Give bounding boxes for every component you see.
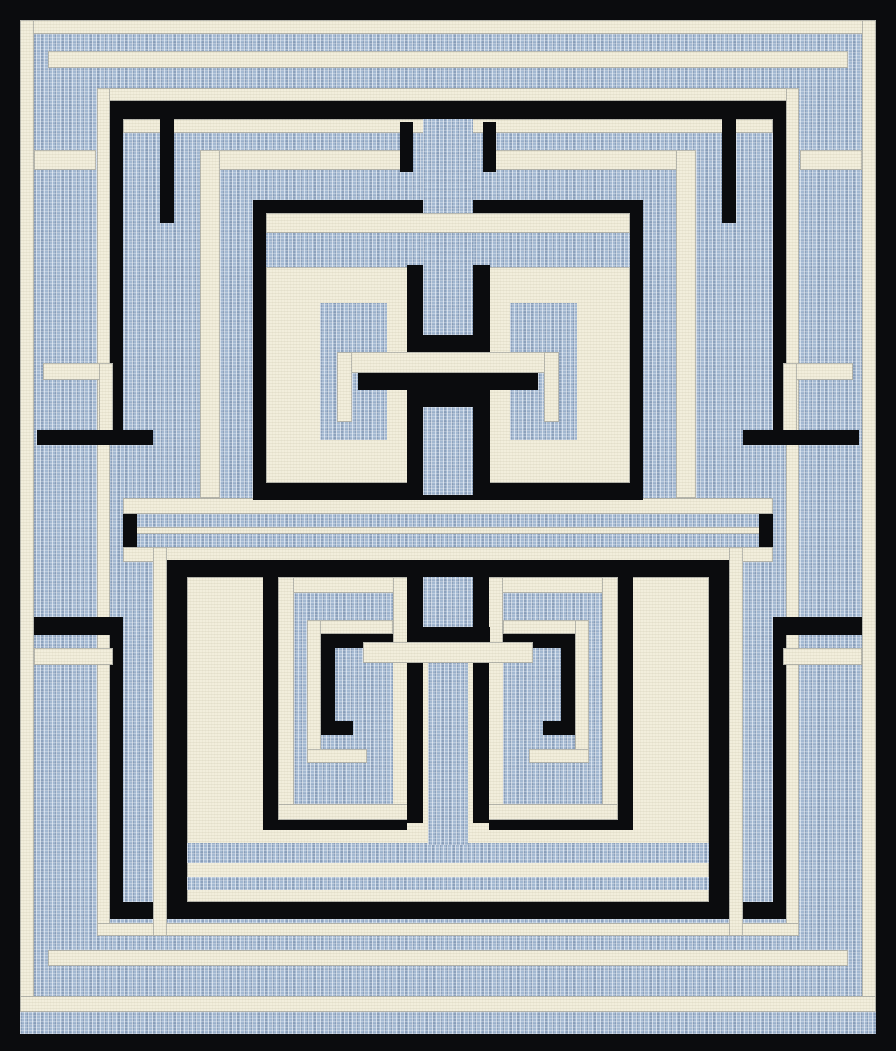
spiral-right-bottom — [487, 804, 618, 820]
notch-cream-left-upper — [34, 150, 96, 170]
bp-R4-right — [729, 547, 743, 936]
bp-T-head — [423, 577, 473, 627]
tp-ringC-top-left — [253, 200, 423, 213]
inner-ring-top — [97, 88, 799, 101]
spiral-left-k-hook — [321, 721, 353, 735]
inner-ring-right — [786, 88, 799, 936]
hook-cream-right-v — [783, 363, 797, 437]
spiral-left-inner-left — [307, 620, 321, 763]
spiral-right-k-v — [561, 634, 575, 735]
corridor-cream-top — [123, 498, 773, 514]
corridor-black-right — [759, 514, 773, 547]
bp-T-bar — [407, 627, 490, 642]
frame-line-bottom — [20, 996, 876, 1012]
tp-ringB-top-left — [200, 150, 413, 170]
frame-line-top — [20, 20, 876, 34]
tick-ring-bottom — [48, 950, 848, 966]
bp-band1 — [187, 843, 709, 863]
spiral-right-top — [487, 577, 618, 593]
bp-outline-right — [709, 560, 729, 919]
tp-hook-left-v — [337, 352, 352, 422]
spiral-right-k-hook — [543, 721, 575, 735]
tp-tick-left — [400, 122, 413, 172]
black-ring-top — [110, 101, 786, 119]
bp-stem-flank-right — [473, 663, 489, 823]
tick-black-right — [786, 617, 862, 635]
corridor-cream-line — [123, 527, 773, 534]
tp-h-flank-bl — [407, 407, 423, 488]
tp-tick-right — [483, 122, 496, 172]
spiral-left-bottom — [278, 804, 409, 820]
corridor-black-left — [123, 514, 137, 547]
notch-cream-right-upper — [800, 150, 862, 170]
spiral-right-inner-right — [575, 620, 589, 763]
frame-line-right — [862, 20, 876, 1012]
tp-ringB-top-right — [483, 150, 696, 170]
bar-black-right — [743, 430, 859, 445]
tp-h-flank-br — [473, 407, 490, 488]
frame-line-left — [20, 20, 34, 1012]
tp-hook-right-v — [544, 352, 559, 422]
tp-A2-right — [722, 119, 736, 223]
bar-black-left — [37, 430, 153, 445]
tp-ringB-right — [676, 150, 696, 498]
tp-ringB-left — [200, 150, 220, 498]
tp-ringC-left — [253, 200, 266, 500]
black-ring-bottom — [110, 902, 786, 919]
tp-h-cap-bottom — [407, 390, 490, 407]
tp-h-cap-top — [407, 335, 490, 352]
tp-h-bar — [358, 373, 538, 390]
tp-break-band — [266, 213, 630, 233]
tp-h-flank-tl — [407, 265, 423, 335]
tp-ringC-right — [630, 200, 643, 500]
bp-bridge — [363, 642, 533, 663]
spiral-left-top — [278, 577, 409, 593]
tp-column-bottom — [423, 407, 473, 495]
spiral-left-left — [278, 577, 294, 820]
tick-black-left — [34, 617, 110, 635]
tp-A2-left — [160, 119, 174, 223]
tp-ringC-top-right — [473, 200, 643, 213]
spiral-right-inner-bottom — [529, 749, 589, 763]
bp-stem — [428, 663, 468, 845]
tick-cream-left — [34, 648, 113, 665]
tick-cream-right — [783, 648, 862, 665]
bp-band2 — [187, 877, 709, 890]
bp-outline-top — [167, 560, 729, 577]
tick-ring-top — [48, 51, 848, 68]
tp-h-flank-tr — [473, 265, 490, 335]
hook-cream-left-v — [99, 363, 113, 437]
inner-ring-bottom — [97, 923, 799, 936]
bp-R4-left — [153, 547, 167, 936]
spiral-left-inner-bottom — [307, 749, 367, 763]
labyrinth-rug-image — [0, 0, 896, 1051]
tp-crossbar — [340, 352, 557, 373]
spiral-left-k-v — [321, 634, 335, 735]
bp-stem-flank-left — [407, 663, 423, 823]
bp-outline-left — [167, 560, 187, 919]
inner-ring-left — [97, 88, 110, 936]
spiral-right-right — [602, 577, 618, 820]
